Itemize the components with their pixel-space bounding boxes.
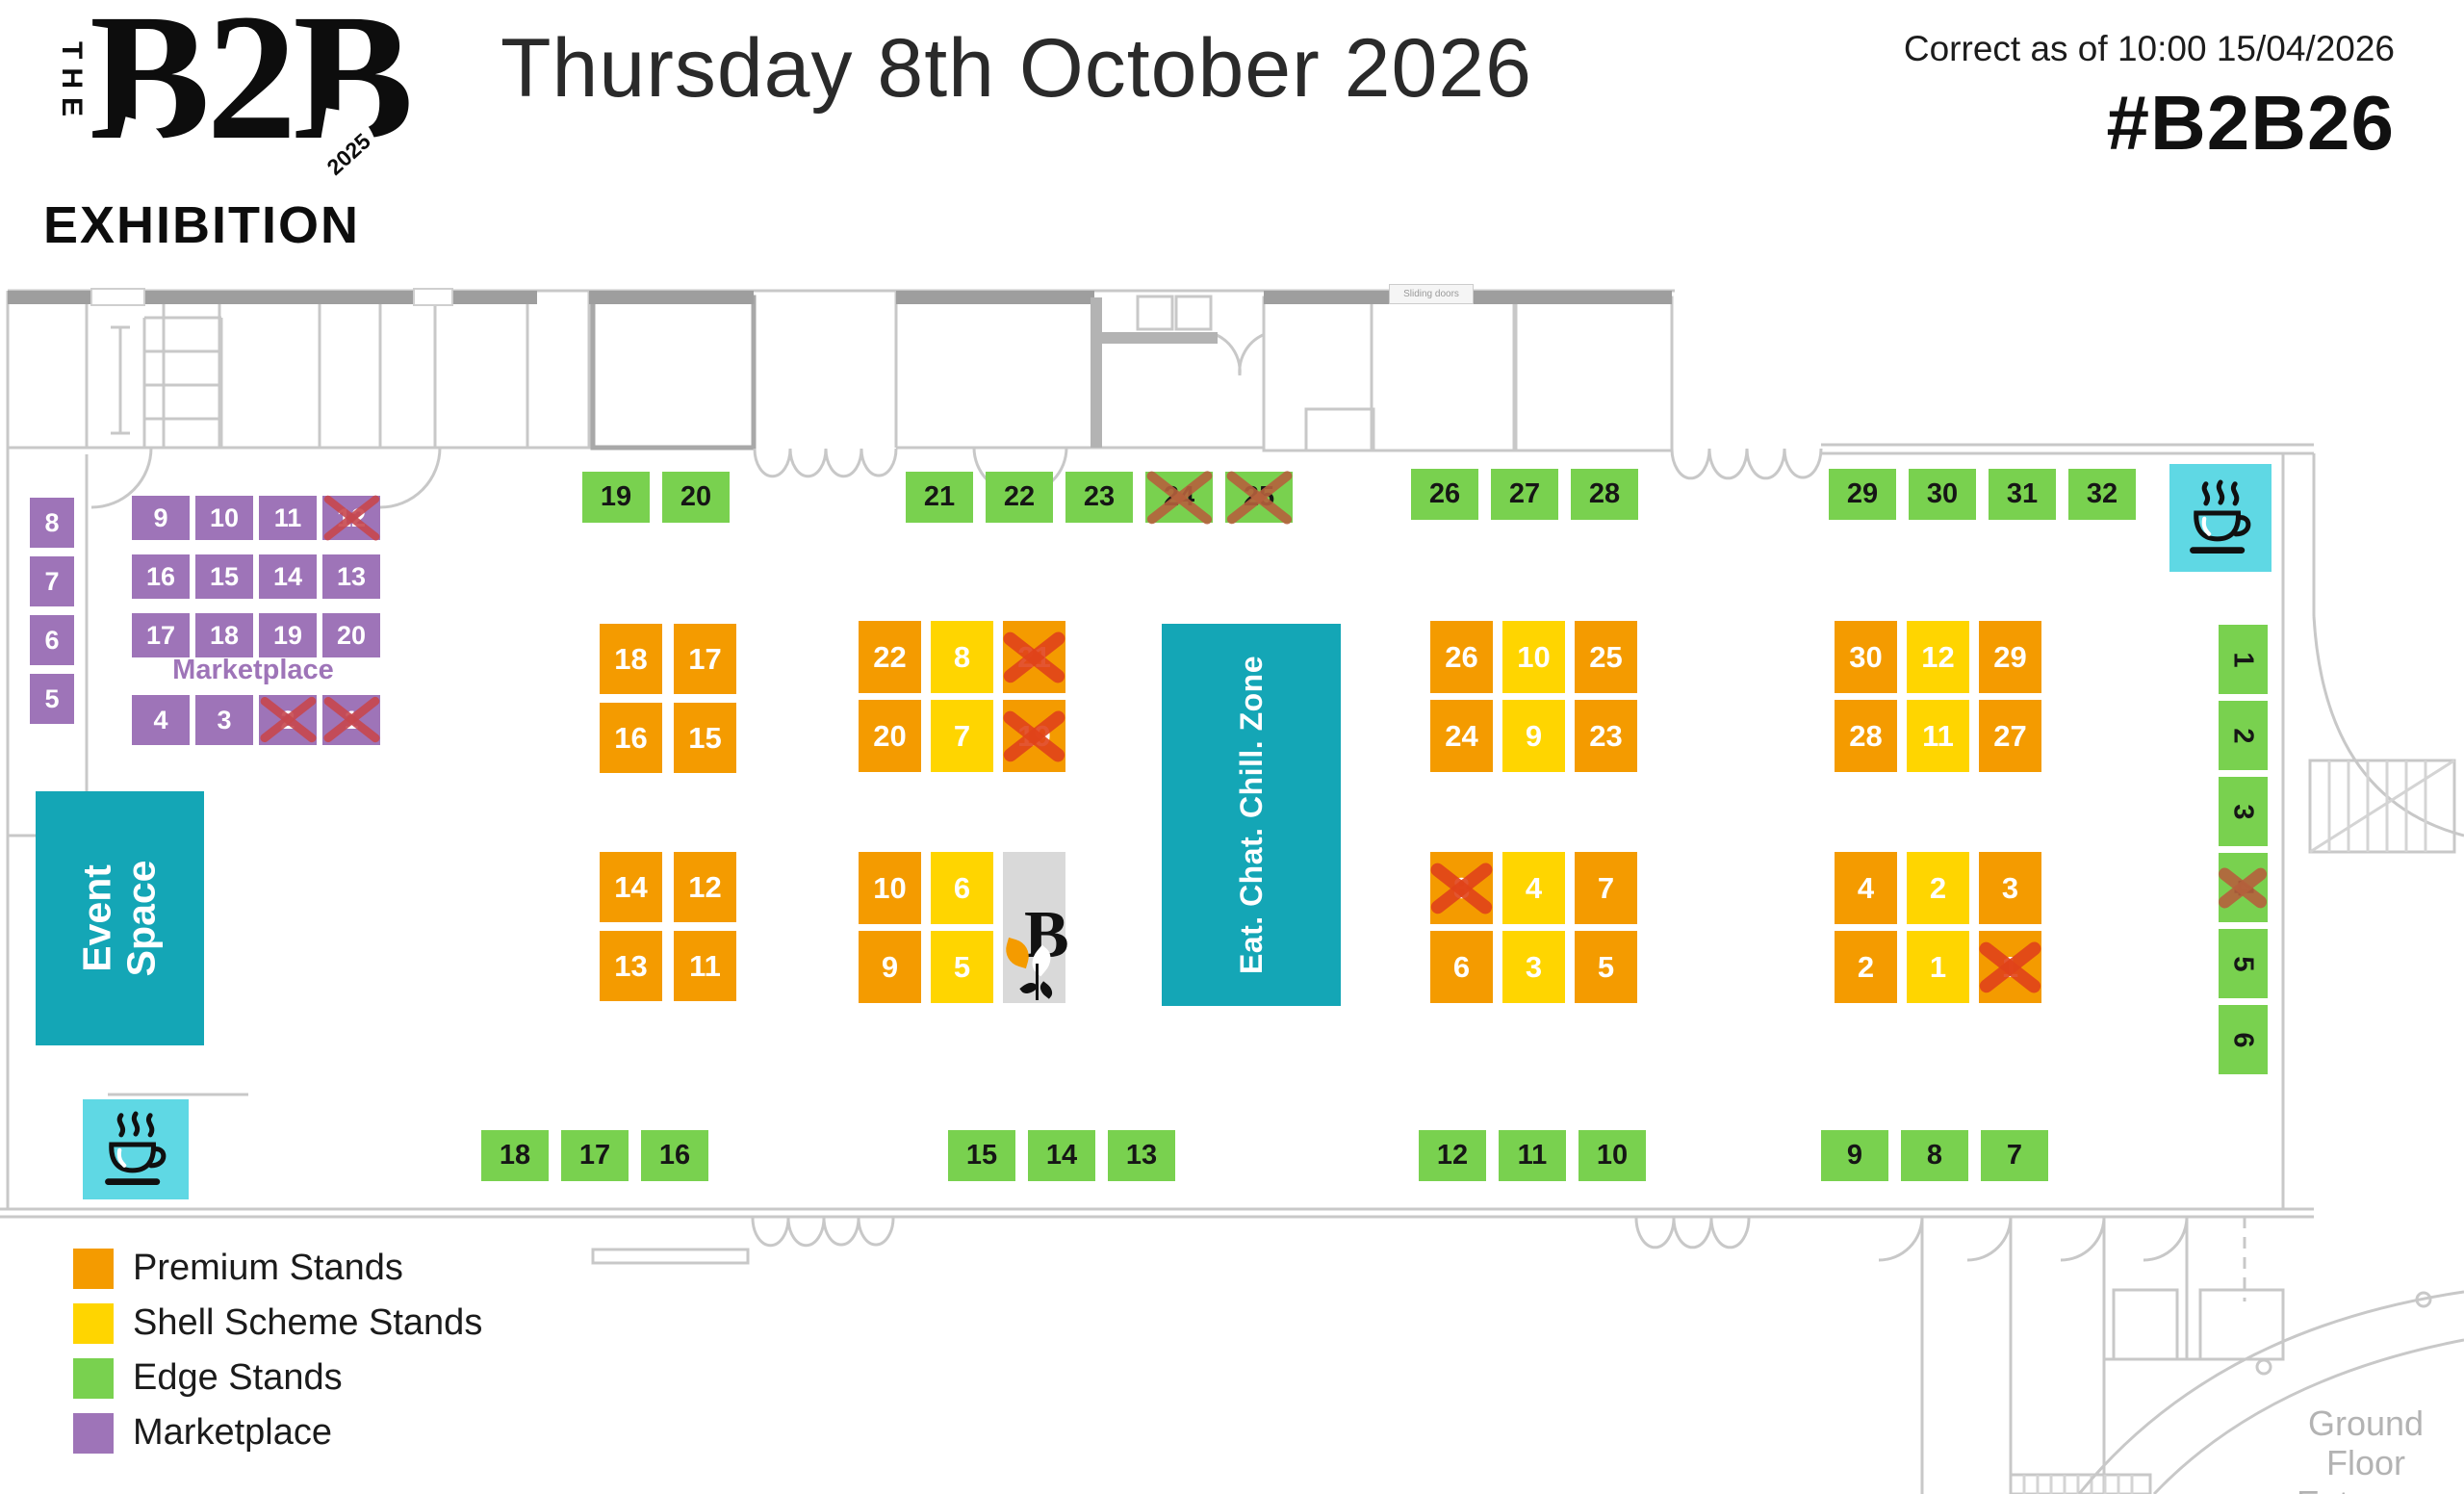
stand-edge-27: 27 bbox=[1491, 469, 1558, 520]
stand-number: 13 bbox=[1126, 1140, 1157, 1172]
stand-marketplace-3: 3 bbox=[195, 695, 253, 745]
cluster-d-top: 301229281127 bbox=[1835, 621, 2041, 772]
stand-number: 10 bbox=[210, 503, 239, 533]
stand-number: 5 bbox=[2227, 956, 2259, 971]
stand-number: 5 bbox=[954, 950, 970, 985]
stand-premium-19-crossed: 19 bbox=[1003, 700, 1065, 772]
stand-premium-1-crossed: 1 bbox=[1979, 931, 2041, 1003]
stand-premium-28: 28 bbox=[1835, 700, 1897, 772]
stand-premium-22: 22 bbox=[859, 621, 921, 693]
stand-edge-21: 21 bbox=[906, 472, 973, 523]
stand-number: 6 bbox=[2227, 1032, 2259, 1047]
stand-number: 7 bbox=[44, 567, 59, 597]
stand-edge-7: 7 bbox=[1981, 1130, 2048, 1181]
edge-stands-bottom-row-2: 151413 bbox=[948, 1130, 1175, 1181]
stand-shell-7: 7 bbox=[931, 700, 993, 772]
header-right: Correct as of 10:00 15/04/2026 #B2B26 bbox=[1904, 29, 2395, 167]
stand-number: 9 bbox=[882, 950, 898, 985]
stand-marketplace-1-crossed: 1 bbox=[322, 695, 380, 745]
stand-number: 12 bbox=[688, 870, 721, 905]
stand-number: 28 bbox=[1589, 478, 1620, 510]
stand-number: 4 bbox=[2227, 880, 2259, 895]
eat-chat-chill-zone: Eat. Chat. Chill. Zone bbox=[1162, 624, 1341, 1006]
stand-edge-31: 31 bbox=[1989, 469, 2056, 520]
stand-number: 6 bbox=[44, 626, 59, 656]
stand-shell-3: 3 bbox=[1502, 931, 1565, 1003]
stand-number: 7 bbox=[2007, 1140, 2022, 1172]
stand-edge-17: 17 bbox=[561, 1130, 629, 1181]
stand-number: 17 bbox=[688, 642, 721, 677]
stand-marketplace-15: 15 bbox=[195, 554, 253, 599]
stand-edge-13: 13 bbox=[1108, 1130, 1175, 1181]
premium-cluster-a-top: 18171615 bbox=[600, 624, 736, 773]
stand-number: 25 bbox=[1589, 640, 1622, 675]
stand-premium-17: 17 bbox=[674, 624, 736, 694]
stand-number: 8 bbox=[954, 640, 970, 675]
stand-number: 30 bbox=[1849, 640, 1882, 675]
stand-shell-8: 8 bbox=[931, 621, 993, 693]
page-title: Thursday 8th October 2026 bbox=[500, 21, 1532, 116]
stand-premium-30: 30 bbox=[1835, 621, 1897, 693]
stand-shell-4: 4 bbox=[1502, 852, 1565, 924]
stand-number: 31 bbox=[2007, 478, 2038, 510]
eat-chat-chill-label: Eat. Chat. Chill. Zone bbox=[1234, 656, 1270, 974]
legend-item: Marketplace bbox=[73, 1412, 482, 1454]
stand-number: 7 bbox=[1598, 871, 1614, 906]
stand-number: 21 bbox=[924, 481, 955, 513]
ground-floor-line1: Ground Floor bbox=[2308, 1404, 2424, 1482]
event-space-label: Event Space bbox=[76, 835, 165, 1003]
stand-number: 20 bbox=[873, 719, 906, 754]
legend-label: Marketplace bbox=[133, 1412, 332, 1454]
stand-premium-3: 3 bbox=[1979, 852, 2041, 924]
stand-premium-24: 24 bbox=[1430, 700, 1493, 772]
stand-edge-4-crossed: 4 bbox=[2219, 853, 2268, 922]
stand-number: 3 bbox=[217, 706, 231, 735]
stand-number: 1 bbox=[1930, 950, 1946, 985]
stand-edge-2: 2 bbox=[2219, 701, 2268, 770]
stand-number: 11 bbox=[274, 503, 302, 533]
b2b-exhibition-logo: B2B THE 2025 EXHIBITION bbox=[43, 5, 438, 255]
stand-number: 19 bbox=[273, 621, 302, 651]
legend-label: Shell Scheme Stands bbox=[133, 1302, 482, 1344]
stand-shell-9: 9 bbox=[1502, 700, 1565, 772]
logo-year: 2025 bbox=[322, 128, 376, 180]
stand-number: 20 bbox=[337, 621, 366, 651]
stand-number: 11 bbox=[689, 949, 721, 984]
stand-marketplace-13: 13 bbox=[322, 554, 380, 599]
stand-marketplace-11: 11 bbox=[259, 496, 317, 540]
legend: Premium StandsShell Scheme StandsEdge St… bbox=[73, 1248, 482, 1467]
stand-marketplace-7: 7 bbox=[30, 556, 74, 606]
stand-marketplace-8: 8 bbox=[30, 498, 74, 548]
stand-edge-1: 1 bbox=[2219, 625, 2268, 694]
stand-edge-15: 15 bbox=[948, 1130, 1015, 1181]
stand-number: 2 bbox=[1930, 871, 1946, 906]
stand-number: 3 bbox=[2227, 804, 2259, 819]
stand-marketplace-17: 17 bbox=[132, 613, 190, 657]
stand-shell-1: 1 bbox=[1907, 931, 1969, 1003]
stand-number: 6 bbox=[954, 871, 970, 906]
cluster-b-top: 2282120719 bbox=[859, 621, 1065, 772]
legend-item: Edge Stands bbox=[73, 1357, 482, 1399]
stand-number: 3 bbox=[1526, 950, 1542, 985]
cluster-d-bottom: 423211 bbox=[1835, 852, 2041, 1003]
stand-marketplace-10: 10 bbox=[195, 496, 253, 540]
stand-shell-10: 10 bbox=[1502, 621, 1565, 693]
stand-premium-6: 6 bbox=[1430, 931, 1493, 1003]
coffee-cup-icon bbox=[95, 1109, 176, 1190]
stand-premium-15: 15 bbox=[674, 703, 736, 773]
stand-number: 21 bbox=[1017, 640, 1050, 675]
stand-edge-25-crossed: 25 bbox=[1225, 472, 1293, 523]
stand-edge-29: 29 bbox=[1829, 469, 1896, 520]
stand-edge-16: 16 bbox=[641, 1130, 708, 1181]
stand-number: 1 bbox=[344, 706, 358, 735]
stand-number: 1 bbox=[2227, 652, 2259, 667]
legend-swatch-shell bbox=[73, 1303, 114, 1344]
stand-number: 14 bbox=[614, 870, 647, 905]
stand-number: 13 bbox=[337, 562, 366, 592]
stand-number: 29 bbox=[1993, 640, 2026, 675]
stand-number: 17 bbox=[579, 1140, 610, 1172]
stand-edge-26: 26 bbox=[1411, 469, 1478, 520]
stand-number: 26 bbox=[1445, 640, 1477, 675]
stand-number: 3 bbox=[2002, 871, 2018, 906]
stand-number: 25 bbox=[1244, 481, 1274, 513]
stand-number: 12 bbox=[1437, 1140, 1468, 1172]
stand-number: 8 bbox=[44, 508, 59, 538]
coffee-area-bottom-left bbox=[83, 1099, 189, 1199]
stand-number: 10 bbox=[1597, 1140, 1628, 1172]
stand-edge-32: 32 bbox=[2068, 469, 2136, 520]
legend-item: Shell Scheme Stands bbox=[73, 1302, 482, 1344]
stand-premium-8-crossed: 8 bbox=[1430, 852, 1493, 924]
stand-number: 19 bbox=[601, 481, 631, 513]
stand-premium-25: 25 bbox=[1575, 621, 1637, 693]
coffee-cup-icon bbox=[2180, 474, 2261, 562]
stand-edge-9: 9 bbox=[1821, 1130, 1888, 1181]
floor-plan-page: B2B THE 2025 EXHIBITION Thursday 8th Oct… bbox=[0, 0, 2464, 1494]
b-logo-stem bbox=[1036, 964, 1039, 1000]
edge-stands-bottom-row-3: 121110 bbox=[1419, 1130, 1646, 1181]
legend-swatch-premium bbox=[73, 1249, 114, 1289]
stand-edge-28: 28 bbox=[1571, 469, 1638, 520]
stand-premium-20: 20 bbox=[859, 700, 921, 772]
stand-number: 8 bbox=[1927, 1140, 1942, 1172]
stand-marketplace-9: 9 bbox=[132, 496, 190, 540]
stand-number: 16 bbox=[659, 1140, 690, 1172]
stand-number: 14 bbox=[273, 562, 302, 592]
stand-number: 11 bbox=[1518, 1140, 1548, 1172]
stand-premium-5: 5 bbox=[1575, 931, 1637, 1003]
stand-number: 10 bbox=[1517, 640, 1550, 675]
stand-number: 4 bbox=[153, 706, 167, 735]
stand-marketplace-6: 6 bbox=[30, 615, 74, 665]
stand-number: 27 bbox=[1509, 478, 1540, 510]
stand-number: 30 bbox=[1927, 478, 1958, 510]
stand-number: 12 bbox=[1921, 640, 1954, 675]
stand-number: 32 bbox=[2087, 478, 2117, 510]
stand-marketplace-18: 18 bbox=[195, 613, 253, 657]
stand-shell-5: 5 bbox=[931, 931, 993, 1003]
stand-edge-22: 22 bbox=[986, 472, 1053, 523]
stand-edge-18: 18 bbox=[481, 1130, 549, 1181]
stand-number: 24 bbox=[1164, 481, 1194, 513]
stand-marketplace-5: 5 bbox=[30, 674, 74, 724]
logo-the-text: THE bbox=[55, 41, 88, 125]
stand-edge-19: 19 bbox=[582, 472, 650, 523]
stand-marketplace-2-crossed: 2 bbox=[259, 695, 317, 745]
stand-edge-23: 23 bbox=[1065, 472, 1133, 523]
stand-number: 20 bbox=[680, 481, 711, 513]
legend-label: Premium Stands bbox=[133, 1248, 403, 1289]
event-space-zone: Event Space bbox=[36, 791, 204, 1045]
stand-number: 8 bbox=[1453, 871, 1470, 906]
stand-number: 17 bbox=[146, 621, 175, 651]
stand-edge-5: 5 bbox=[2219, 929, 2268, 998]
ground-floor-entrance-label: Ground Floor Entrance bbox=[2268, 1404, 2464, 1494]
stand-shell-6: 6 bbox=[931, 852, 993, 924]
stand-number: 4 bbox=[1526, 871, 1542, 906]
stand-number: 15 bbox=[966, 1140, 997, 1172]
stand-number: 23 bbox=[1589, 719, 1622, 754]
legend-label: Edge Stands bbox=[133, 1357, 343, 1399]
stand-number: 29 bbox=[1847, 478, 1878, 510]
stand-edge-30: 30 bbox=[1909, 469, 1976, 520]
stand-number: 18 bbox=[210, 621, 239, 651]
stand-number: 2 bbox=[280, 706, 295, 735]
stand-number: 26 bbox=[1429, 478, 1460, 510]
stand-premium-21-crossed: 21 bbox=[1003, 621, 1065, 693]
stand-marketplace-14: 14 bbox=[259, 554, 317, 599]
stand-shell-2: 2 bbox=[1907, 852, 1969, 924]
stand-marketplace-12-crossed: 12 bbox=[322, 496, 380, 540]
stand-premium-26: 26 bbox=[1430, 621, 1493, 693]
edge-stands-bottom-row-4: 987 bbox=[1821, 1130, 2048, 1181]
stand-number: 12 bbox=[337, 503, 366, 533]
stand-premium-2: 2 bbox=[1835, 931, 1897, 1003]
stand-premium-13: 13 bbox=[600, 931, 662, 1001]
stand-number: 4 bbox=[1858, 871, 1874, 906]
stand-number: 15 bbox=[688, 721, 721, 756]
b-logo-small-leaf-icon bbox=[1037, 981, 1055, 999]
stand-premium-9: 9 bbox=[859, 931, 921, 1003]
stand-premium-14: 14 bbox=[600, 852, 662, 922]
stand-premium-27: 27 bbox=[1979, 700, 2041, 772]
stand-number: 6 bbox=[1453, 950, 1470, 985]
sliding-doors-label: Sliding doors bbox=[1389, 284, 1474, 304]
stand-number: 9 bbox=[1847, 1140, 1862, 1172]
stand-marketplace-16: 16 bbox=[132, 554, 190, 599]
stand-premium-23: 23 bbox=[1575, 700, 1637, 772]
stand-number: 16 bbox=[146, 562, 175, 592]
stand-number: 9 bbox=[153, 503, 167, 533]
stand-number: 22 bbox=[1004, 481, 1035, 513]
legend-item: Premium Stands bbox=[73, 1248, 482, 1289]
stand-number: 15 bbox=[210, 562, 239, 592]
cluster-c-bottom: 847635 bbox=[1430, 852, 1637, 1003]
stand-marketplace-4: 4 bbox=[132, 695, 190, 745]
ground-floor-line2: Entrance bbox=[2297, 1483, 2435, 1494]
stand-premium-18: 18 bbox=[600, 624, 662, 694]
stand-number: 1 bbox=[2002, 950, 2018, 985]
stand-number: 5 bbox=[44, 684, 59, 714]
stand-number: 2 bbox=[1858, 950, 1874, 985]
edge-stands-top-row-1: 1920 bbox=[582, 472, 730, 523]
stand-number: 14 bbox=[1046, 1140, 1077, 1172]
stand-number: 5 bbox=[1598, 950, 1614, 985]
stand-edge-24-crossed: 24 bbox=[1145, 472, 1213, 523]
marketplace-zone-label: Marketplace bbox=[132, 655, 374, 686]
edge-stands-top-row-4: 29303132 bbox=[1829, 469, 2136, 520]
stand-shell-12: 12 bbox=[1907, 621, 1969, 693]
b2b-feature-stand: B bbox=[1003, 852, 1065, 1003]
stand-number: 23 bbox=[1084, 481, 1115, 513]
stand-number: 11 bbox=[1922, 719, 1954, 754]
stand-number: 18 bbox=[614, 642, 647, 677]
marketplace-grid: 91011121615141317181920 bbox=[132, 496, 380, 657]
stand-number: 18 bbox=[500, 1140, 530, 1172]
hashtag-text: #B2B26 bbox=[1904, 79, 2395, 167]
edge-stands-bottom-row-1: 181716 bbox=[481, 1130, 708, 1181]
cluster-b-bottom: 10695 bbox=[859, 852, 993, 1003]
marketplace-bottom-row: 4321 bbox=[132, 695, 380, 745]
stand-edge-3: 3 bbox=[2219, 777, 2268, 846]
stand-number: 24 bbox=[1445, 719, 1477, 754]
stand-edge-20: 20 bbox=[662, 472, 730, 523]
coffee-area-top-right bbox=[2169, 464, 2271, 572]
stand-marketplace-19: 19 bbox=[259, 613, 317, 657]
edge-stands-top-row-2: 2122232425 bbox=[906, 472, 1293, 523]
correct-as-of-text: Correct as of 10:00 15/04/2026 bbox=[1904, 29, 2395, 69]
stand-edge-8: 8 bbox=[1901, 1130, 1968, 1181]
stand-edge-10: 10 bbox=[1578, 1130, 1646, 1181]
stand-premium-11: 11 bbox=[674, 931, 736, 1001]
stand-premium-16: 16 bbox=[600, 703, 662, 773]
stand-edge-6: 6 bbox=[2219, 1005, 2268, 1074]
stand-number: 2 bbox=[2227, 728, 2259, 743]
stand-premium-12: 12 bbox=[674, 852, 736, 922]
stand-number: 10 bbox=[873, 871, 906, 906]
premium-cluster-a-bottom: 14121311 bbox=[600, 852, 736, 1001]
stand-number: 27 bbox=[1993, 719, 2026, 754]
edge-stands-top-row-3: 262728 bbox=[1411, 469, 1638, 520]
stand-number: 16 bbox=[614, 721, 647, 756]
cluster-c-top: 26102524923 bbox=[1430, 621, 1637, 772]
marketplace-left-column: 8765 bbox=[30, 498, 74, 724]
legend-swatch-marketplace bbox=[73, 1413, 114, 1454]
stand-shell-11: 11 bbox=[1907, 700, 1969, 772]
stand-marketplace-20: 20 bbox=[322, 613, 380, 657]
stand-number: 19 bbox=[1017, 719, 1050, 754]
legend-swatch-edge bbox=[73, 1358, 114, 1399]
stand-edge-12: 12 bbox=[1419, 1130, 1486, 1181]
stand-number: 13 bbox=[614, 949, 647, 984]
stand-premium-4: 4 bbox=[1835, 852, 1897, 924]
stand-edge-11: 11 bbox=[1499, 1130, 1566, 1181]
stand-number: 28 bbox=[1849, 719, 1882, 754]
stand-premium-29: 29 bbox=[1979, 621, 2041, 693]
stand-number: 9 bbox=[1526, 719, 1542, 754]
logo-exhibition-text: EXHIBITION bbox=[43, 195, 360, 255]
stand-edge-14: 14 bbox=[1028, 1130, 1095, 1181]
stand-number: 22 bbox=[873, 640, 906, 675]
stand-premium-10: 10 bbox=[859, 852, 921, 924]
stand-premium-7: 7 bbox=[1575, 852, 1637, 924]
stand-number: 7 bbox=[954, 719, 970, 754]
edge-stands-right-column: 123456 bbox=[2219, 625, 2268, 1074]
